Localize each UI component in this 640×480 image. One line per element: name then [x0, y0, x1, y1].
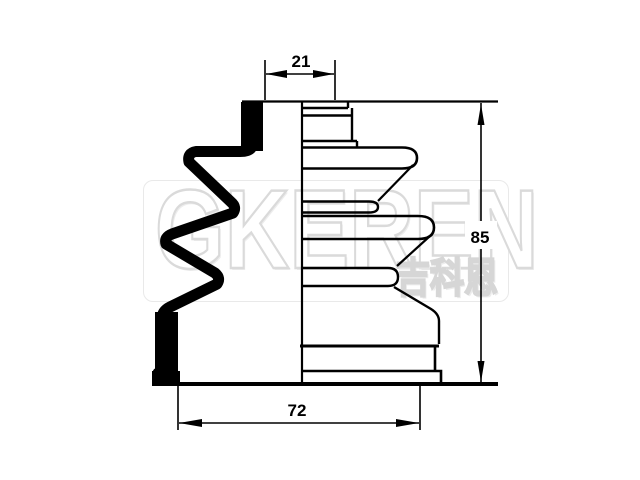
dim85-arrow-top: [478, 104, 485, 125]
dim21-arrow-left: [266, 70, 287, 78]
dimension-bottom-width: 72: [178, 386, 420, 430]
dim72-label: 72: [288, 401, 307, 420]
bellows-trough-1: [302, 202, 378, 213]
dim85-label: 85: [471, 228, 490, 247]
bellows-crest-2: [302, 216, 434, 239]
dim85-arrow-bottom: [478, 361, 485, 382]
dim21-arrow-right: [313, 70, 334, 78]
large-end-lip: [302, 371, 441, 382]
small-end-clamp-lines: [302, 102, 357, 148]
dim72-arrow-right: [396, 419, 419, 427]
bellows-diagonal-1: [378, 165, 413, 201]
large-end-left-foot: [152, 371, 180, 383]
dimension-top-width: 21: [265, 52, 335, 100]
bellows-crest-1: [302, 148, 417, 169]
dimension-height: 85: [465, 103, 497, 383]
dim21-label: 21: [292, 52, 311, 71]
large-end-flare: [394, 287, 439, 344]
cv-boot-drawing: 21 85 72: [0, 0, 640, 480]
bellows-diagonal-2: [397, 236, 430, 266]
technical-drawing-canvas: GKEREN 吉科恩: [0, 0, 640, 480]
boot-section-left: [152, 102, 263, 383]
dim72-arrow-left: [179, 419, 202, 427]
boot-outline-right: [152, 102, 498, 385]
bellows-trough-2: [302, 268, 398, 286]
